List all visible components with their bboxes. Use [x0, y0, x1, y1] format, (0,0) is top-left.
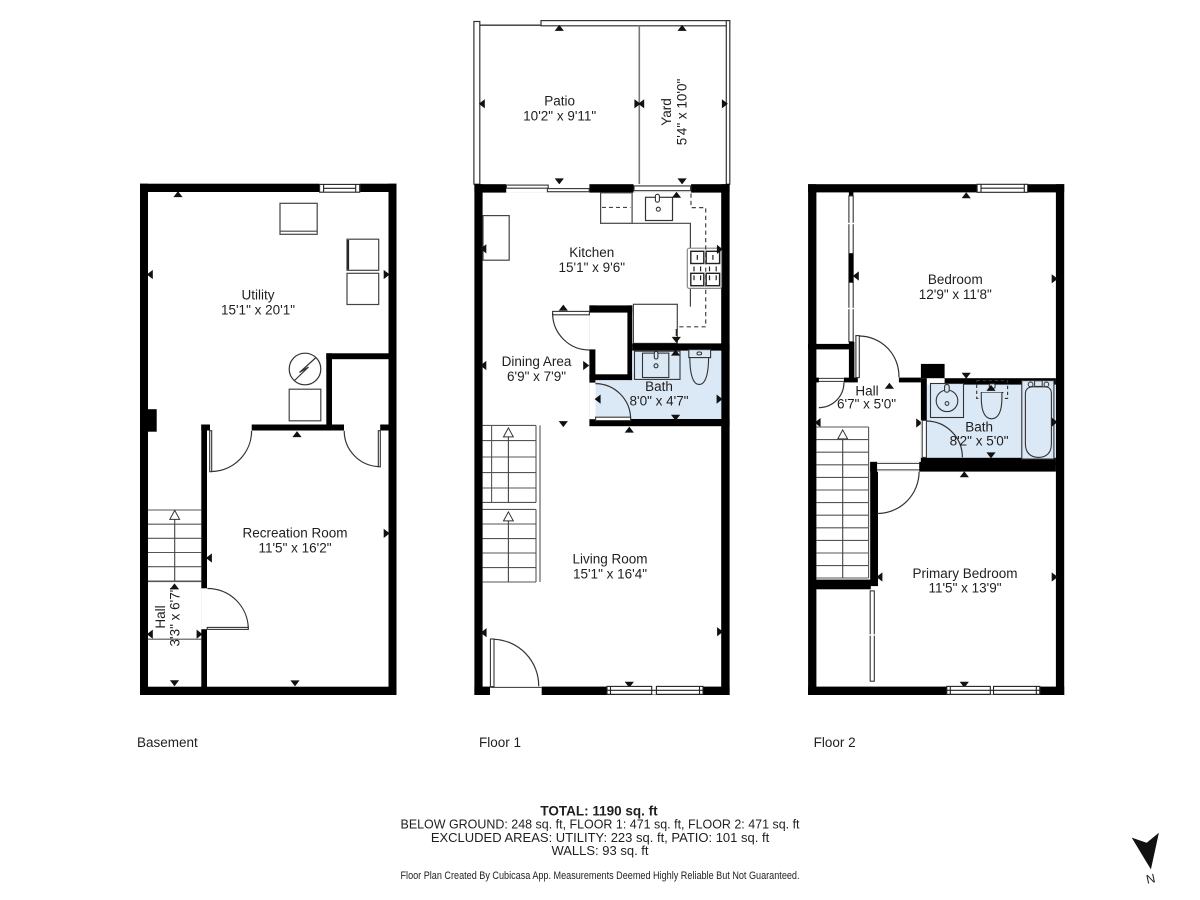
svg-text:WALLS: 93 sq. ft: WALLS: 93 sq. ft	[551, 843, 648, 858]
svg-text:Floor Plan Created By Cubicasa: Floor Plan Created By Cubicasa App. Meas…	[401, 870, 800, 882]
svg-text:Recreation Room: Recreation Room	[242, 526, 347, 541]
svg-text:Bedroom: Bedroom	[928, 272, 983, 287]
svg-text:11'5" x 13'9": 11'5" x 13'9"	[928, 581, 1001, 596]
svg-text:15'1" x 9'6": 15'1" x 9'6"	[559, 260, 626, 275]
svg-text:Bath: Bath	[965, 420, 993, 435]
svg-text:Basement: Basement	[137, 735, 198, 750]
svg-text:6'9" x 7'9": 6'9" x 7'9"	[507, 369, 566, 384]
svg-text:Primary Bedroom: Primary Bedroom	[912, 566, 1017, 581]
svg-text:8'0" x 4'7": 8'0" x 4'7"	[629, 394, 688, 409]
svg-text:10'2" x 9'11": 10'2" x 9'11"	[523, 109, 596, 124]
svg-text:Bath: Bath	[645, 379, 673, 394]
svg-text:6'7" x 5'0": 6'7" x 5'0"	[837, 397, 896, 412]
svg-text:15'1" x 16'4": 15'1" x 16'4"	[573, 567, 647, 582]
svg-text:Patio: Patio	[544, 94, 575, 109]
svg-text:5'4" x 10'0": 5'4" x 10'0"	[675, 79, 690, 146]
svg-text:Dining Area: Dining Area	[502, 354, 572, 369]
svg-text:Yard: Yard	[659, 98, 674, 126]
svg-text:Floor 1: Floor 1	[479, 735, 521, 750]
svg-text:Utility: Utility	[242, 288, 275, 303]
svg-text:11'5" x 16'2": 11'5" x 16'2"	[258, 541, 331, 556]
svg-text:Living Room: Living Room	[572, 552, 647, 567]
svg-text:Floor 2: Floor 2	[814, 735, 856, 750]
svg-text:12'9" x 11'8": 12'9" x 11'8"	[919, 287, 992, 302]
svg-text:Hall: Hall	[153, 605, 168, 628]
svg-text:8'2" x 5'0": 8'2" x 5'0"	[950, 434, 1009, 449]
svg-text:15'1" x 20'1": 15'1" x 20'1"	[221, 303, 295, 318]
svg-text:Kitchen: Kitchen	[569, 245, 614, 260]
svg-text:3'3" x 6'7": 3'3" x 6'7"	[168, 587, 183, 646]
